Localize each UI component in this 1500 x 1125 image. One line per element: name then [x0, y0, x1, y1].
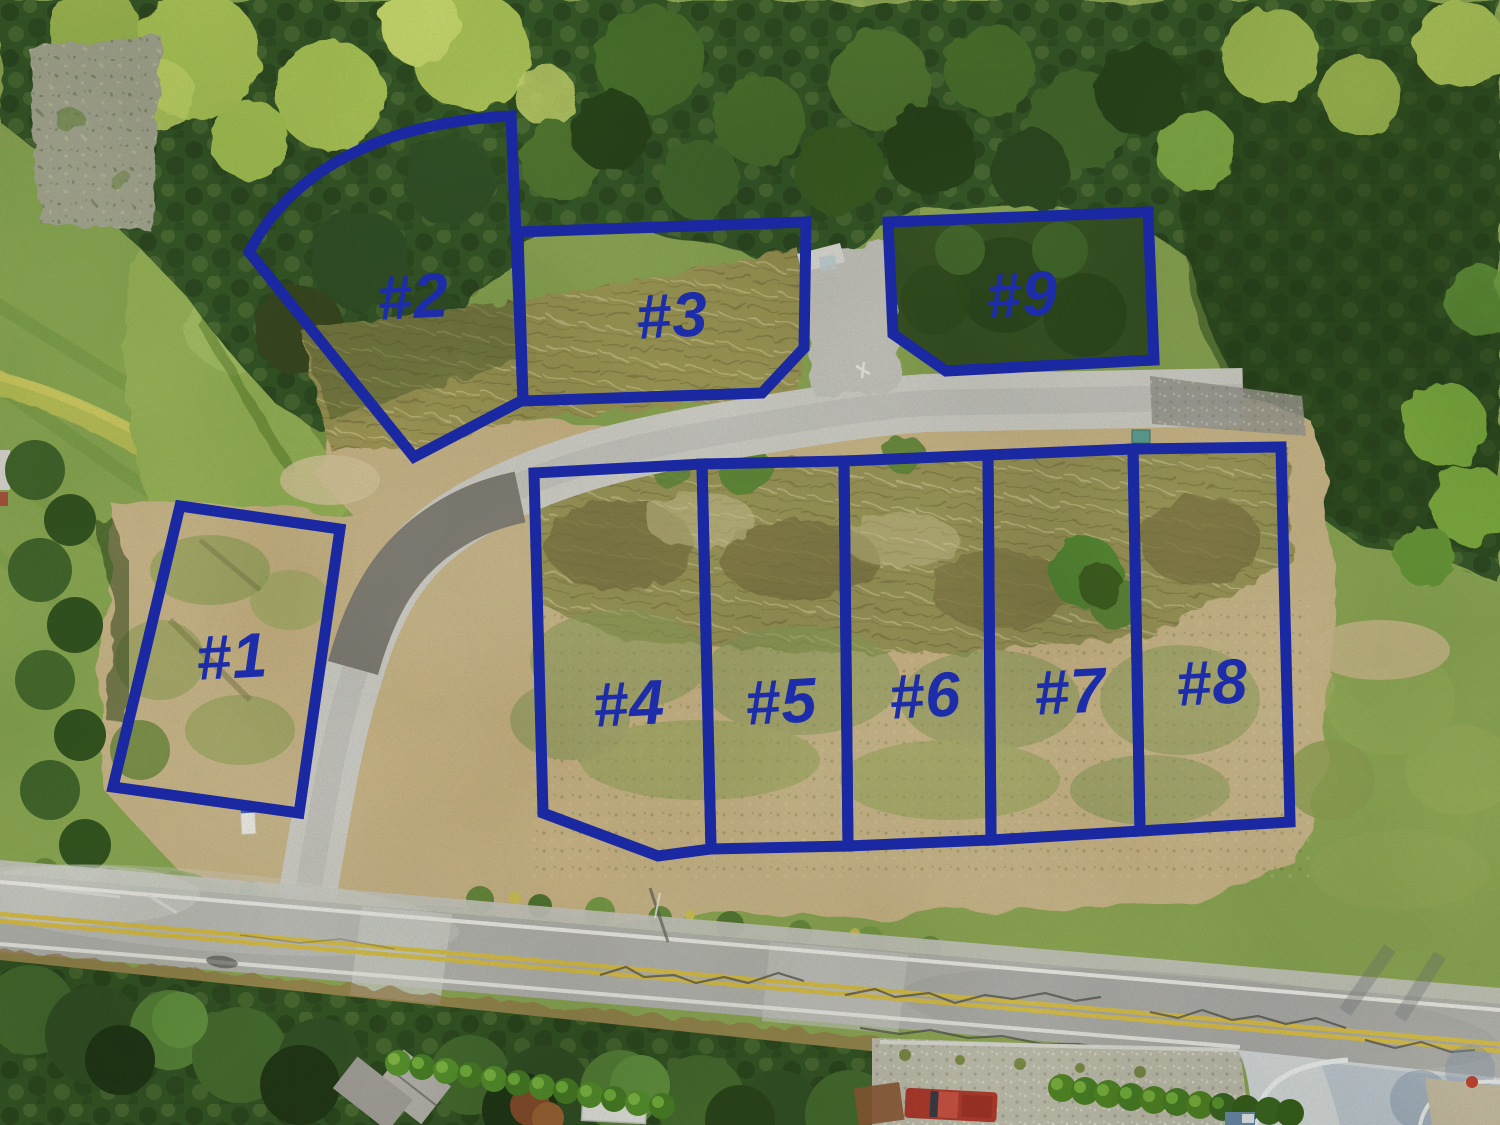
grain-overlay: [0, 0, 1500, 1125]
lot-label-8: #8: [1174, 646, 1250, 720]
aerial-lot-photo: #1#2#3#4#5#6#7#8#9: [0, 0, 1500, 1125]
lot-label-5: #5: [743, 665, 819, 739]
lot-label-2: #2: [375, 260, 451, 334]
lot-label-3: #3: [634, 279, 710, 353]
lot-label-6: #6: [887, 659, 963, 733]
lot-label-1: #1: [194, 620, 270, 694]
lot-label-4: #4: [591, 667, 667, 741]
photo-background: [0, 0, 1500, 1125]
lot-label-9: #9: [984, 258, 1060, 332]
lot-label-7: #7: [1032, 655, 1110, 729]
